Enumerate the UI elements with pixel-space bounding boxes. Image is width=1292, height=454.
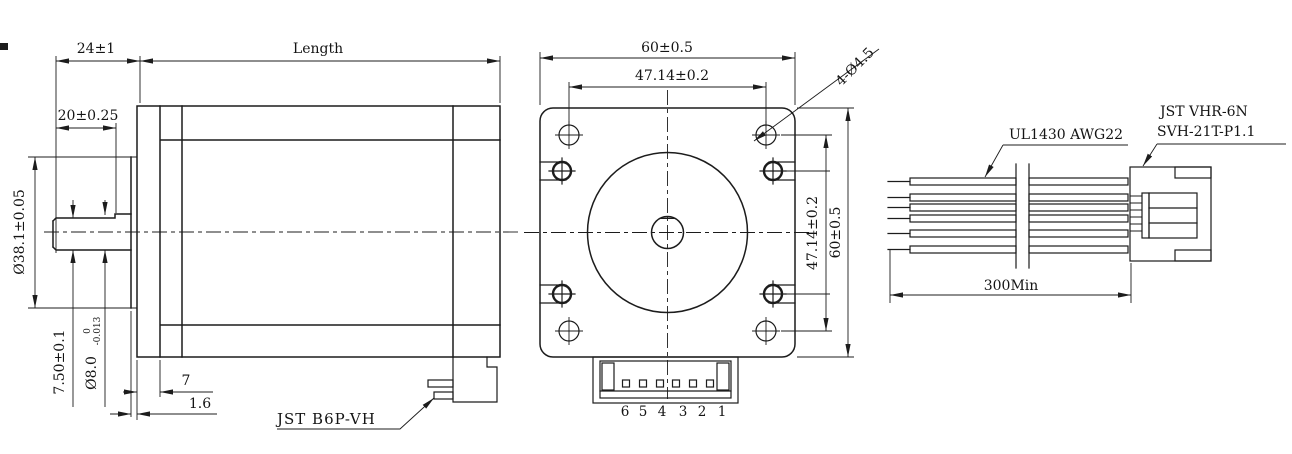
side-connector — [453, 357, 497, 402]
dim-shaft-flat-height: 7.50±0.1 — [52, 329, 68, 394]
dim-shaft-tol-lower: -0.013 — [93, 316, 103, 345]
wires — [888, 178, 1128, 253]
cable-view-dimensions — [890, 144, 1286, 303]
front-connector — [593, 357, 738, 403]
front-view: 60±0.5 47.14±0.2 4-Ø4.5 47.14±0.2 60±0.5… — [524, 40, 879, 420]
dim-shaft-flat-length: 20±0.25 — [58, 108, 119, 124]
label-mounting-holes: 4-Ø4.5 — [833, 45, 878, 90]
pin-number-6: 6 — [621, 404, 630, 420]
cable-break-lines — [1016, 164, 1029, 268]
dim-pilot-depth: 1.6 — [189, 396, 211, 412]
front-view-dimensions — [540, 49, 879, 357]
pin-number-2: 2 — [698, 404, 707, 420]
side-connector-label: JST B6P-VH — [275, 410, 376, 428]
cable-connector-label-line1: JST VHR-6N — [1158, 104, 1248, 120]
edge-artifact — [0, 43, 8, 50]
dim-body-length: Length — [293, 41, 343, 57]
pin-number-5: 5 — [639, 404, 648, 420]
dim-cable-length: 300Min — [984, 278, 1039, 294]
wire-spec-leader — [985, 145, 1128, 177]
side-view-outline — [53, 106, 500, 402]
cable-view: UL1430 AWG22 JST VHR-6N SVH-21T-P1.1 300… — [888, 104, 1286, 303]
dim-hole-spacing-h: 47.14±0.2 — [635, 68, 709, 84]
pin-number-4: 4 — [658, 404, 667, 420]
side-connector-pin — [428, 380, 453, 387]
side-view: 24±1 Length 20±0.25 Ø38.1±0.05 7.50±0.1 … — [12, 41, 520, 429]
cable-connector-leader — [1143, 144, 1286, 166]
dim-flange-height: 60±0.5 — [828, 207, 844, 259]
cable-connector — [1130, 167, 1211, 261]
dim-shaft-diameter: Ø8.0 — [84, 356, 100, 390]
dim-flange-width: 60±0.5 — [641, 40, 693, 56]
dim-shaft-extension: 24±1 — [77, 41, 115, 57]
drawing-canvas: 24±1 Length 20±0.25 Ø38.1±0.05 7.50±0.1 … — [0, 0, 1292, 454]
dim-flange-thickness: 7 — [182, 373, 191, 389]
wire-spec-label: UL1430 AWG22 — [1009, 127, 1123, 143]
cable-connector-label-line2: SVH-21T-P1.1 — [1157, 124, 1255, 140]
side-connector-pin — [434, 392, 453, 399]
pin-numbers: 6 5 4 3 2 1 — [621, 404, 727, 420]
pin-number-1: 1 — [718, 404, 727, 420]
pin-number-3: 3 — [679, 404, 688, 420]
dim-pilot-diameter: Ø38.1±0.05 — [12, 189, 28, 275]
dim-hole-spacing-v: 47.14±0.2 — [805, 196, 821, 270]
motor-dimension-drawing: 24±1 Length 20±0.25 Ø38.1±0.05 7.50±0.1 … — [0, 0, 1292, 454]
dim-shaft-tol-upper: 0 — [83, 328, 93, 334]
